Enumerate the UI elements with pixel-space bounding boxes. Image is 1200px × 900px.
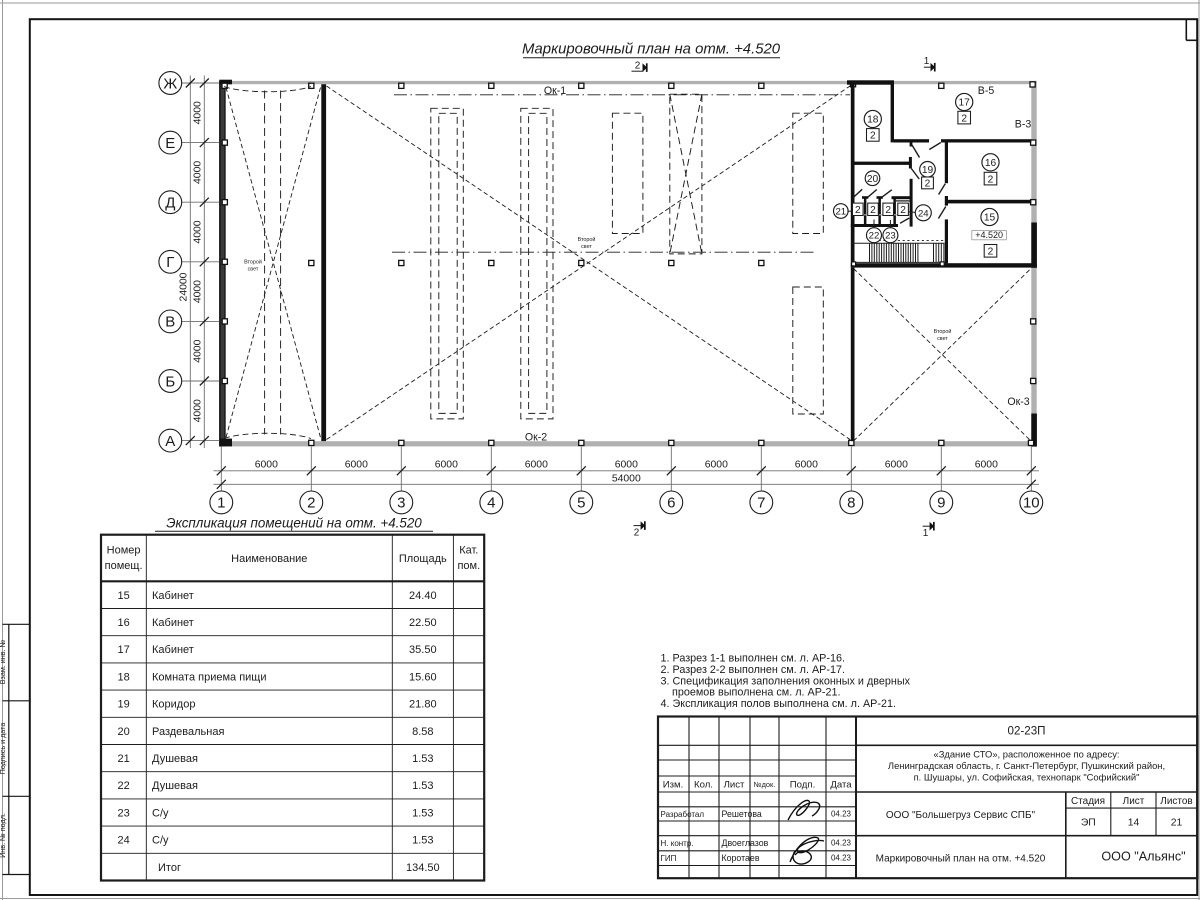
svg-text:Ок-2: Ок-2 xyxy=(525,432,547,444)
svg-text:Кат.: Кат. xyxy=(459,545,478,557)
svg-text:Комната приема пищи: Комната приема пищи xyxy=(152,671,267,683)
svg-text:4000: 4000 xyxy=(193,101,204,124)
svg-text:04.23: 04.23 xyxy=(831,810,852,819)
svg-text:4000: 4000 xyxy=(193,161,204,184)
svg-text:Д: Д xyxy=(165,195,175,212)
svg-text:2: 2 xyxy=(988,174,994,185)
svg-text:свет: свет xyxy=(248,267,259,273)
svg-text:Ж: Ж xyxy=(163,75,177,92)
svg-text:1. Разрез 1-1 выполнен см. л.: 1. Разрез 1-1 выполнен см. л. АР-16. xyxy=(661,653,845,665)
svg-text:2: 2 xyxy=(635,60,641,71)
svg-text:Н. контр.: Н. контр. xyxy=(661,839,694,848)
svg-text:6000: 6000 xyxy=(435,460,458,471)
svg-text:Стадия: Стадия xyxy=(1071,796,1105,807)
svg-text:В-5: В-5 xyxy=(978,85,995,97)
svg-text:2: 2 xyxy=(634,528,640,539)
svg-text:22: 22 xyxy=(117,780,129,792)
svg-text:2. Разрез 2-2 выполнен см. л.: 2. Разрез 2-2 выполнен см. л. АР-17. xyxy=(661,664,845,676)
svg-text:6000: 6000 xyxy=(885,460,908,471)
svg-text:Лист: Лист xyxy=(724,780,745,791)
svg-text:8: 8 xyxy=(847,495,855,512)
svg-text:16: 16 xyxy=(117,617,129,629)
svg-text:«Здание СТО», расположенное по: «Здание СТО», расположенное по адресу: xyxy=(933,749,1119,760)
svg-text:4000: 4000 xyxy=(193,220,204,243)
svg-text:14: 14 xyxy=(1128,818,1140,829)
svg-text:02-23П: 02-23П xyxy=(1008,725,1046,738)
svg-text:Второй: Второй xyxy=(578,236,596,243)
svg-text:ООО "Большегруз Сервис СПБ": ООО "Большегруз Сервис СПБ" xyxy=(886,810,1036,821)
svg-text:10: 10 xyxy=(1023,495,1040,512)
svg-text:2: 2 xyxy=(961,113,967,124)
svg-text:Двоеглазов: Двоеглазов xyxy=(722,838,769,848)
svg-text:6: 6 xyxy=(667,495,675,512)
svg-text:Г: Г xyxy=(166,254,174,271)
svg-text:Ленинградская область, г. Санк: Ленинградская область, г. Санкт-Петербур… xyxy=(888,760,1165,771)
svg-text:Площадь: Площадь xyxy=(399,553,447,565)
svg-text:Второй: Второй xyxy=(934,328,952,335)
svg-text:Лист: Лист xyxy=(1123,796,1145,807)
svg-text:Маркировочный план на отм. +4.: Маркировочный план на отм. +4.520 xyxy=(522,42,781,58)
svg-text:22.50: 22.50 xyxy=(409,617,437,629)
svg-text:15.60: 15.60 xyxy=(409,671,437,683)
svg-text:1.53: 1.53 xyxy=(412,835,433,847)
svg-text:пом.: пом. xyxy=(457,560,480,572)
svg-text:Ок-3: Ок-3 xyxy=(1007,396,1029,408)
svg-text:Раздевальная: Раздевальная xyxy=(152,726,224,738)
svg-text:6000: 6000 xyxy=(795,460,818,471)
svg-text:ООО "Альянс": ООО "Альянс" xyxy=(1101,850,1185,864)
svg-text:6000: 6000 xyxy=(615,460,638,471)
svg-text:16: 16 xyxy=(985,158,997,169)
svg-text:1.53: 1.53 xyxy=(412,780,433,792)
svg-text:4000: 4000 xyxy=(193,280,204,303)
svg-text:21: 21 xyxy=(835,206,846,217)
svg-text:2: 2 xyxy=(870,205,876,216)
svg-text:134.50: 134.50 xyxy=(406,862,440,874)
svg-text:Кабинет: Кабинет xyxy=(152,590,194,602)
svg-text:19: 19 xyxy=(117,699,129,711)
svg-text:Кол.: Кол. xyxy=(694,780,713,791)
svg-text:04.23: 04.23 xyxy=(831,839,852,848)
svg-text:Наименование: Наименование xyxy=(231,553,307,565)
svg-text:6000: 6000 xyxy=(345,460,368,471)
svg-text:1.53: 1.53 xyxy=(412,807,433,819)
svg-text:Коридор: Коридор xyxy=(152,699,195,711)
svg-text:54000: 54000 xyxy=(612,473,641,484)
svg-text:24: 24 xyxy=(117,835,129,847)
svg-text:8.58: 8.58 xyxy=(412,726,433,738)
svg-text:21: 21 xyxy=(117,753,129,765)
svg-text:18: 18 xyxy=(117,671,129,683)
svg-text:15: 15 xyxy=(984,213,996,224)
svg-text:6000: 6000 xyxy=(525,460,548,471)
svg-text:Е: Е xyxy=(165,135,175,152)
svg-text:15: 15 xyxy=(117,590,129,602)
svg-text:4: 4 xyxy=(487,495,495,512)
svg-text:ЭП: ЭП xyxy=(1081,818,1096,829)
svg-text:24.40: 24.40 xyxy=(409,590,437,602)
svg-text:6000: 6000 xyxy=(705,460,728,471)
svg-text:3. Спецификация заполнения око: 3. Спецификация заполнения оконных и две… xyxy=(661,675,911,687)
svg-text:Душевая: Душевая xyxy=(152,780,198,792)
svg-text:5: 5 xyxy=(577,495,585,512)
svg-text:24000: 24000 xyxy=(179,272,190,301)
svg-text:Подп.: Подп. xyxy=(790,780,815,791)
svg-text:6000: 6000 xyxy=(975,460,998,471)
svg-text:2: 2 xyxy=(988,246,994,257)
svg-text:20: 20 xyxy=(117,726,129,738)
svg-text:1: 1 xyxy=(923,528,929,539)
svg-text:Подпись и дата: Подпись и дата xyxy=(0,723,7,775)
svg-text:А: А xyxy=(165,433,175,450)
svg-text:2: 2 xyxy=(900,205,906,216)
svg-text:Решетова: Решетова xyxy=(722,809,762,819)
svg-text:Разработал: Разработал xyxy=(661,810,705,819)
svg-text:В-3: В-3 xyxy=(1015,119,1032,131)
svg-text:Взам. инв. №: Взам. инв. № xyxy=(0,639,7,684)
svg-text:п. Шушары, ул. Софийская, техн: п. Шушары, ул. Софийская, технопарк "Соф… xyxy=(914,772,1140,783)
svg-text:2: 2 xyxy=(307,495,315,512)
svg-text:проемов выполнена см. л. АР-21: проемов выполнена см. л. АР-21. xyxy=(672,687,841,699)
svg-text:Дата: Дата xyxy=(830,780,852,791)
svg-text:23: 23 xyxy=(117,807,129,819)
svg-text:Кабинет: Кабинет xyxy=(152,644,194,656)
svg-text:4000: 4000 xyxy=(193,339,204,362)
svg-text:4. Экспликация полов выполнена: 4. Экспликация полов выполнена см. л. АР… xyxy=(661,698,896,710)
svg-text:17: 17 xyxy=(959,98,971,109)
svg-text:9: 9 xyxy=(937,495,945,512)
svg-text:ГИП: ГИП xyxy=(661,854,677,863)
svg-text:+4.520: +4.520 xyxy=(975,230,1003,240)
svg-text:Листов: Листов xyxy=(1160,796,1193,807)
svg-text:24: 24 xyxy=(918,208,929,219)
svg-text:свет: свет xyxy=(581,244,592,250)
svg-text:22: 22 xyxy=(869,231,880,242)
svg-text:Коротаев: Коротаев xyxy=(722,853,760,863)
svg-text:Маркировочный план на отм. +4.: Маркировочный план на отм. +4.520 xyxy=(876,854,1046,865)
svg-text:Номер: Номер xyxy=(107,545,141,557)
svg-text:21: 21 xyxy=(1171,818,1183,829)
svg-text:18: 18 xyxy=(867,115,879,126)
svg-text:1: 1 xyxy=(924,56,930,67)
svg-text:2: 2 xyxy=(855,205,861,216)
svg-text:2: 2 xyxy=(870,131,876,142)
svg-text:23: 23 xyxy=(885,231,896,242)
svg-text:С/у: С/у xyxy=(152,835,169,847)
svg-text:35.50: 35.50 xyxy=(409,644,437,656)
svg-text:2: 2 xyxy=(885,205,891,216)
svg-text:1.53: 1.53 xyxy=(412,753,433,765)
svg-text:7: 7 xyxy=(757,495,765,512)
svg-text:В: В xyxy=(165,314,175,331)
svg-text:4000: 4000 xyxy=(193,399,204,422)
svg-text:№док.: №док. xyxy=(754,780,776,789)
svg-text:С/у: С/у xyxy=(152,807,169,819)
svg-text:2: 2 xyxy=(925,179,931,190)
svg-text:21.80: 21.80 xyxy=(409,699,437,711)
svg-text:17: 17 xyxy=(117,644,129,656)
svg-text:Изм.: Изм. xyxy=(663,780,684,791)
svg-text:Второй: Второй xyxy=(244,259,262,266)
svg-text:Итог: Итог xyxy=(158,862,181,874)
svg-text:04.23: 04.23 xyxy=(831,854,852,863)
svg-text:свет: свет xyxy=(937,336,948,342)
svg-text:Душевая: Душевая xyxy=(152,753,198,765)
svg-text:Кабинет: Кабинет xyxy=(152,617,194,629)
svg-text:6000: 6000 xyxy=(255,460,278,471)
svg-text:19: 19 xyxy=(922,165,934,176)
svg-text:Инв. № подл.: Инв. № подл. xyxy=(0,813,7,858)
svg-text:3: 3 xyxy=(397,495,405,512)
svg-text:20: 20 xyxy=(867,174,879,185)
svg-text:Экспликация помещений на отм.: Экспликация помещений на отм. +4.520 xyxy=(166,516,422,531)
svg-text:1: 1 xyxy=(217,495,225,512)
svg-text:помещ.: помещ. xyxy=(105,560,143,572)
svg-text:Б: Б xyxy=(165,373,175,390)
